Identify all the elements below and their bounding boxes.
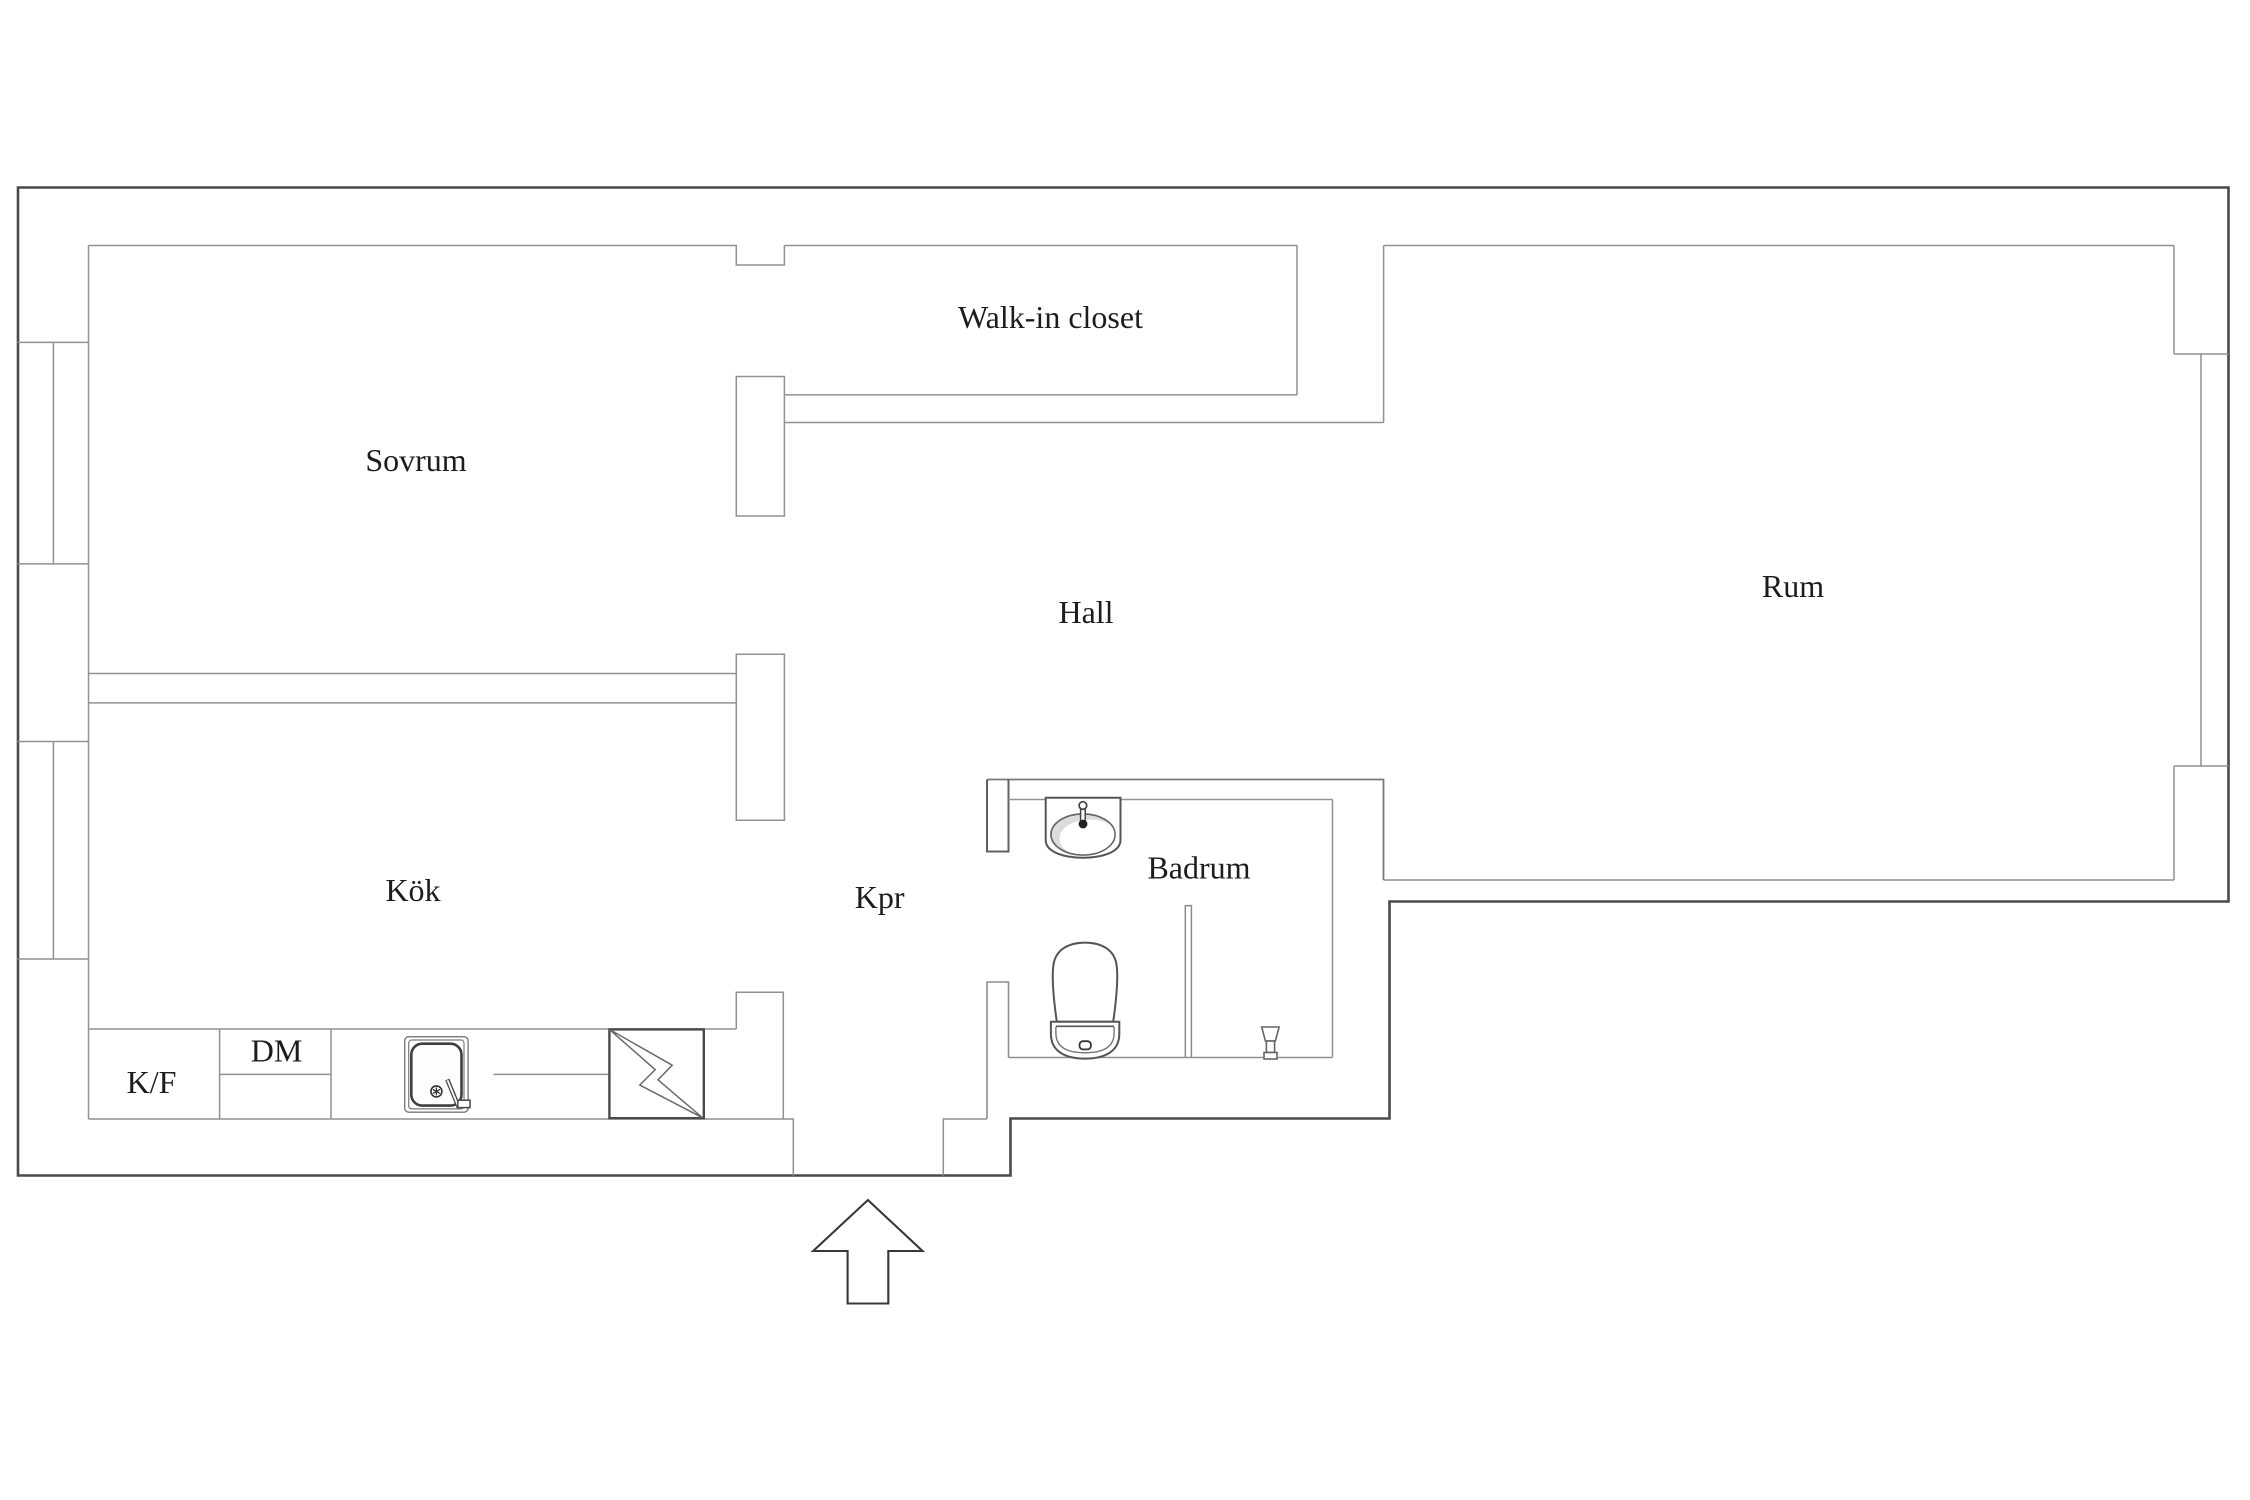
- svg-text:DM: DM: [251, 1033, 303, 1069]
- svg-text:K/F: K/F: [127, 1064, 177, 1100]
- svg-text:Hall: Hall: [1058, 594, 1113, 630]
- svg-text:Badrum: Badrum: [1147, 850, 1250, 886]
- svg-text:Walk-in closet: Walk-in closet: [958, 299, 1143, 335]
- svg-text:Kök: Kök: [385, 872, 440, 908]
- svg-text:Kpr: Kpr: [855, 879, 905, 915]
- svg-text:Sovrum: Sovrum: [365, 442, 466, 478]
- svg-text:Rum: Rum: [1762, 568, 1824, 604]
